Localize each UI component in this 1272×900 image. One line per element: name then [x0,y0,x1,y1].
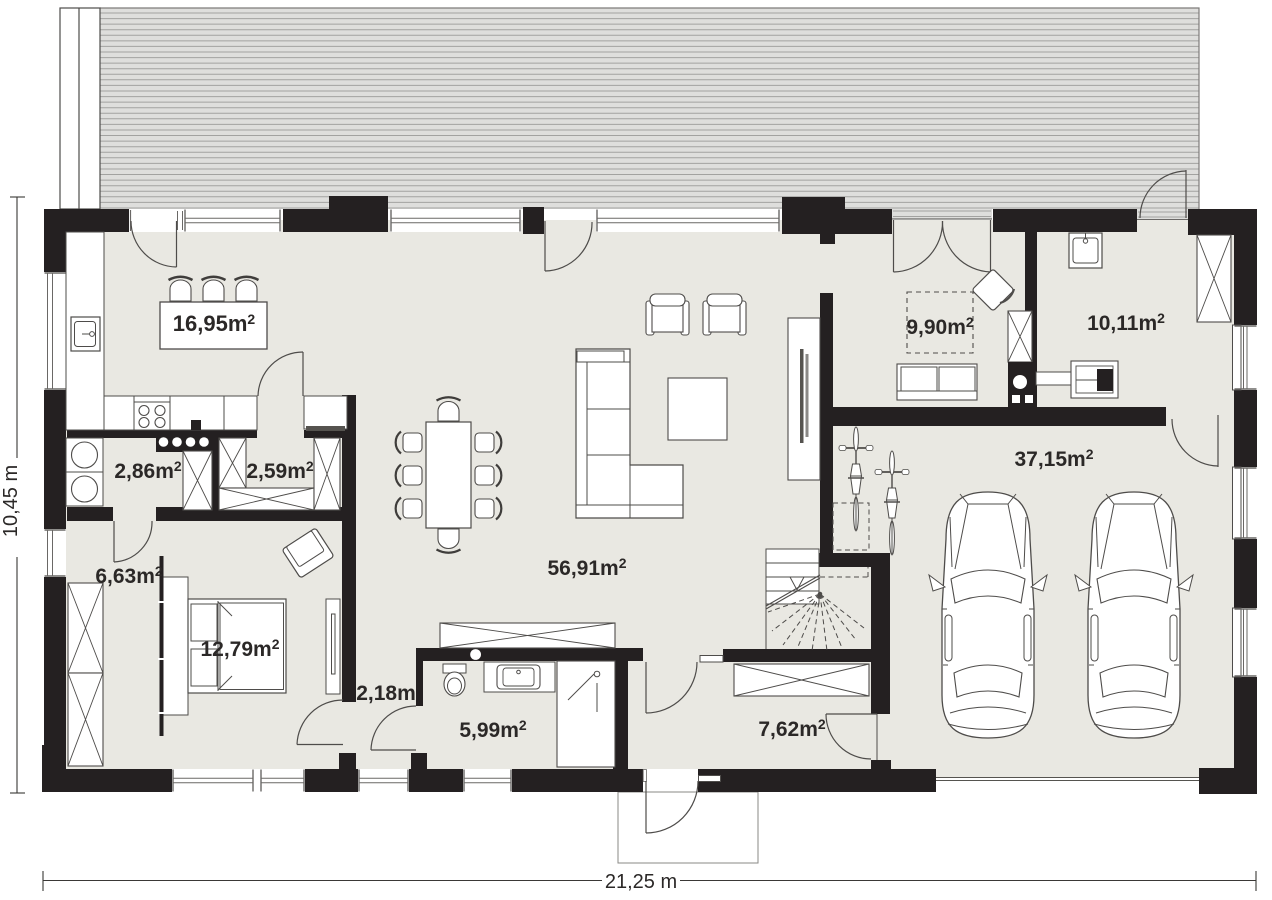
svg-text:56,91m2: 56,91m2 [547,555,626,580]
svg-text:9,90m2: 9,90m2 [906,314,974,339]
svg-text:37,15m2: 37,15m2 [1014,446,1093,471]
svg-text:2,18m: 2,18m [356,682,416,705]
svg-text:7,62m2: 7,62m2 [758,716,826,741]
svg-text:21,25 m: 21,25 m [605,871,677,893]
svg-text:10,45 m: 10,45 m [0,465,22,537]
svg-text:2,59m2: 2,59m2 [246,458,314,483]
svg-text:16,95m2: 16,95m2 [173,311,256,336]
svg-text:2,86m2: 2,86m2 [114,458,182,483]
svg-text:5,99m2: 5,99m2 [459,717,527,742]
svg-text:12,79m2: 12,79m2 [200,636,279,661]
svg-text:10,11m2: 10,11m2 [1087,310,1165,335]
svg-text:6,63m2: 6,63m2 [95,563,163,588]
